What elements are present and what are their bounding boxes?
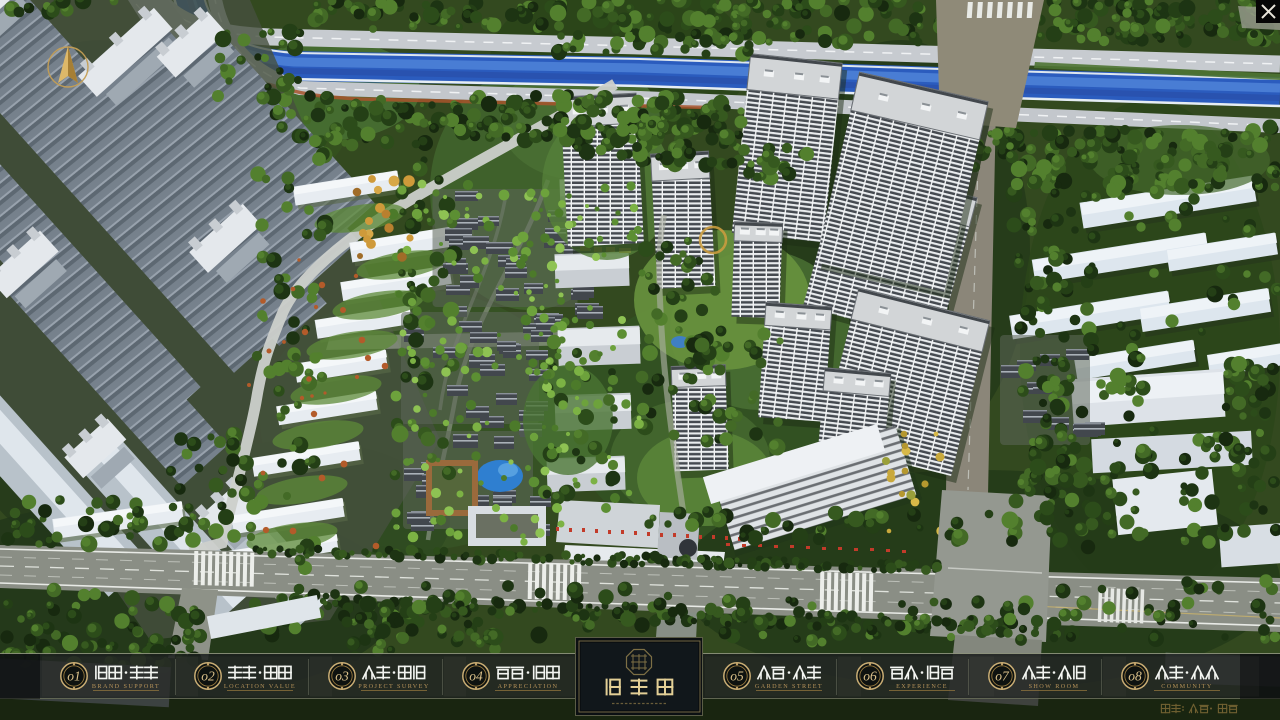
svg-text:EXPERIENCE: EXPERIENCE: [896, 683, 948, 690]
svg-text:o6: o6: [863, 669, 877, 684]
svg-text:o5: o5: [730, 669, 744, 684]
svg-text:BRAND SUPPORT: BRAND SUPPORT: [92, 683, 160, 690]
svg-text:o2: o2: [201, 669, 215, 684]
svg-text:GARDEN STREET: GARDEN STREET: [755, 683, 823, 690]
svg-text:LOCATION VALUE: LOCATION VALUE: [224, 683, 296, 690]
svg-text:o3: o3: [335, 669, 349, 684]
svg-text:APPRECIATION: APPRECIATION: [498, 683, 559, 690]
svg-text:COMMUNITY: COMMUNITY: [1161, 683, 1212, 690]
svg-text:o1: o1: [67, 669, 81, 684]
svg-text:PROJECT SURVEY: PROJECT SURVEY: [358, 683, 429, 690]
svg-text:SHOW ROOM: SHOW ROOM: [1029, 683, 1080, 690]
svg-text:o4: o4: [469, 669, 483, 684]
svg-text:o8: o8: [1128, 669, 1142, 684]
svg-text:o7: o7: [995, 669, 1010, 684]
